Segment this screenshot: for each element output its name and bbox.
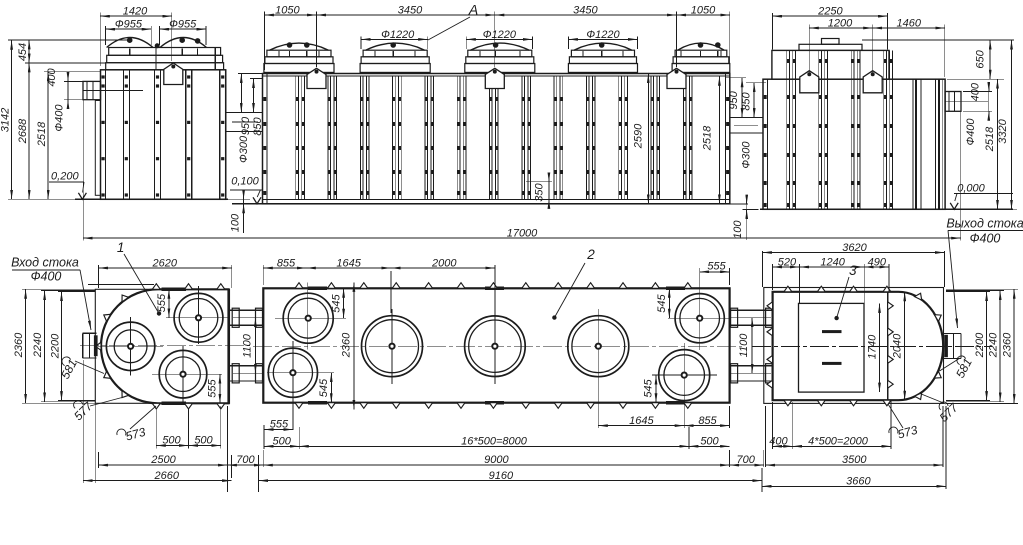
svg-text:545: 545 [656, 293, 668, 312]
svg-text:2240: 2240 [988, 332, 1000, 358]
svg-text:400: 400 [46, 67, 58, 86]
svg-text:545: 545 [330, 293, 342, 312]
svg-text:855: 855 [277, 257, 296, 269]
svg-text:А: А [468, 2, 478, 18]
svg-text:Ф400: Ф400 [31, 270, 62, 284]
svg-text:2040: 2040 [891, 333, 903, 359]
svg-text:555: 555 [207, 378, 219, 397]
svg-text:Ф1220: Ф1220 [586, 29, 620, 41]
svg-text:2250: 2250 [817, 6, 843, 18]
svg-text:Ф300: Ф300 [238, 135, 250, 163]
svg-text:700: 700 [737, 454, 756, 466]
svg-text:2200: 2200 [974, 332, 986, 358]
svg-text:3660: 3660 [846, 476, 871, 488]
svg-text:1: 1 [117, 240, 125, 255]
svg-text:400: 400 [970, 82, 982, 101]
svg-text:3450: 3450 [573, 5, 598, 17]
svg-text:0,200: 0,200 [51, 170, 79, 182]
svg-text:400: 400 [769, 435, 788, 447]
svg-text:1100: 1100 [738, 333, 750, 358]
svg-text:950: 950 [728, 90, 740, 109]
svg-text:2590: 2590 [633, 123, 645, 149]
svg-text:555: 555 [707, 260, 726, 272]
svg-text:2688: 2688 [17, 118, 29, 144]
svg-text:1645: 1645 [629, 415, 654, 427]
svg-text:2500: 2500 [150, 454, 176, 466]
svg-text:3500: 3500 [842, 454, 867, 466]
svg-text:2518: 2518 [36, 121, 48, 147]
svg-text:500: 500 [162, 435, 181, 447]
svg-text:850: 850 [740, 91, 752, 110]
svg-text:700: 700 [236, 454, 255, 466]
svg-text:100: 100 [732, 220, 744, 239]
svg-text:1050: 1050 [691, 5, 716, 17]
svg-text:Ф400: Ф400 [965, 118, 977, 146]
svg-text:2518: 2518 [702, 125, 714, 151]
svg-text:0,100: 0,100 [231, 176, 259, 188]
svg-text:555: 555 [270, 419, 289, 431]
svg-text:17000: 17000 [507, 227, 538, 239]
svg-text:2620: 2620 [152, 257, 178, 269]
svg-text:855: 855 [698, 415, 717, 427]
svg-text:1460: 1460 [897, 18, 922, 30]
svg-text:500: 500 [194, 435, 213, 447]
svg-text:350: 350 [534, 182, 546, 201]
svg-text:100: 100 [230, 213, 242, 232]
svg-text:3320: 3320 [997, 118, 1009, 143]
svg-text:545: 545 [318, 378, 330, 397]
svg-text:Ф955: Ф955 [169, 19, 197, 31]
svg-text:2360: 2360 [13, 332, 25, 358]
svg-text:490: 490 [868, 256, 887, 268]
svg-text:950: 950 [240, 116, 252, 135]
svg-text:Ф955: Ф955 [115, 19, 143, 31]
svg-text:Выход стока: Выход стока [946, 217, 1023, 231]
svg-text:2: 2 [586, 247, 595, 262]
svg-text:520: 520 [778, 256, 797, 268]
svg-text:Ф300: Ф300 [740, 141, 752, 169]
svg-text:16*500=8000: 16*500=8000 [461, 435, 528, 447]
svg-text:454: 454 [17, 43, 29, 61]
svg-text:500: 500 [273, 435, 292, 447]
svg-text:3450: 3450 [398, 5, 423, 17]
svg-text:650: 650 [974, 49, 986, 68]
svg-text:2660: 2660 [154, 470, 180, 482]
svg-text:545: 545 [643, 378, 655, 397]
svg-text:Ф400: Ф400 [53, 104, 65, 132]
svg-text:850: 850 [252, 116, 264, 135]
svg-text:3620: 3620 [842, 242, 867, 254]
svg-text:500: 500 [700, 435, 719, 447]
svg-text:1050: 1050 [275, 5, 300, 17]
svg-text:1200: 1200 [828, 18, 853, 30]
svg-text:1420: 1420 [123, 6, 148, 18]
svg-text:1240: 1240 [820, 256, 845, 268]
svg-text:Ф400: Ф400 [970, 232, 1001, 246]
svg-text:9160: 9160 [489, 470, 514, 482]
svg-text:0,000: 0,000 [957, 182, 985, 194]
svg-text:2000: 2000 [431, 257, 457, 269]
svg-text:1645: 1645 [336, 257, 361, 269]
svg-text:3142: 3142 [0, 108, 11, 132]
svg-text:2518: 2518 [984, 126, 996, 152]
svg-text:Ф1220: Ф1220 [483, 29, 517, 41]
svg-text:4*500=2000: 4*500=2000 [808, 435, 869, 447]
svg-text:1100: 1100 [241, 333, 253, 358]
svg-text:9000: 9000 [484, 454, 509, 466]
svg-text:3: 3 [849, 263, 857, 278]
svg-text:Ф1220: Ф1220 [381, 29, 415, 41]
svg-text:2360: 2360 [1002, 332, 1014, 358]
svg-text:2360: 2360 [340, 332, 352, 358]
svg-text:Вход стока: Вход стока [11, 256, 79, 270]
svg-text:555: 555 [156, 293, 168, 312]
svg-text:1740: 1740 [866, 334, 878, 359]
svg-text:2240: 2240 [32, 332, 44, 358]
svg-text:2200: 2200 [49, 333, 61, 359]
